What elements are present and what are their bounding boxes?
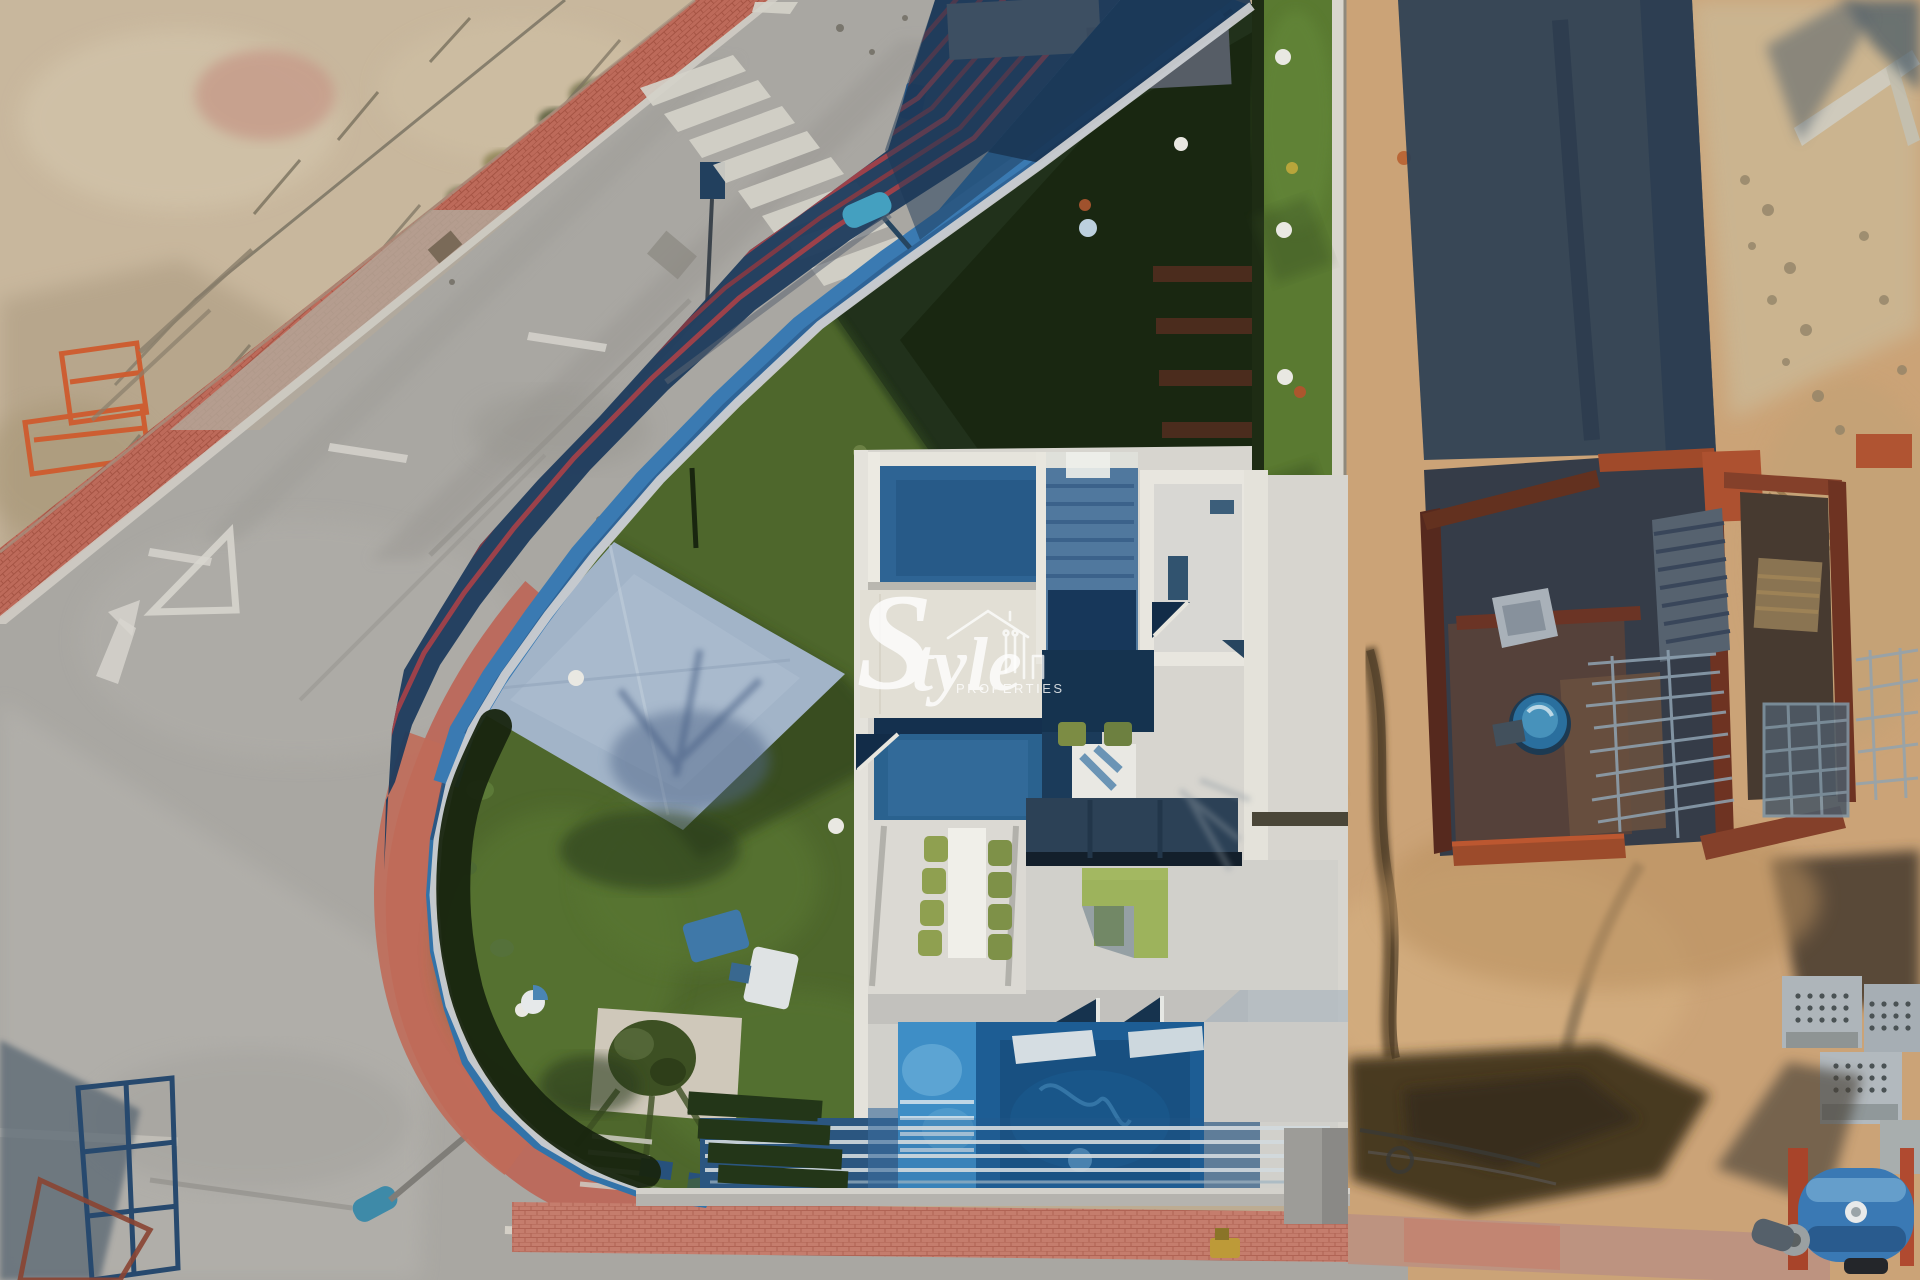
svg-text:PROPERTIES: PROPERTIES: [956, 681, 1065, 696]
